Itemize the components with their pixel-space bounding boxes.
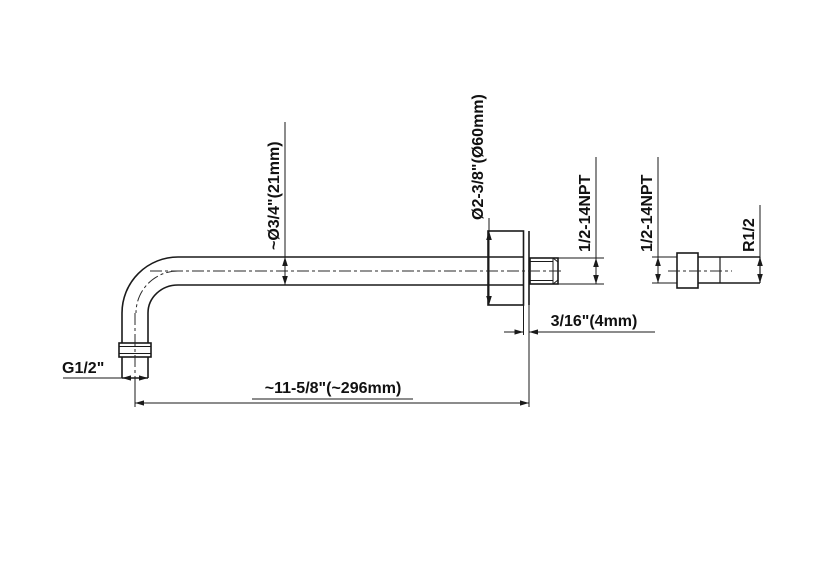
technical-drawing-canvas: ~Ø3/4"(21mm) Ø2-3/8"(Ø60mm) 1/2-14NPT 1/… <box>0 0 831 587</box>
dim-label-tube-od: ~Ø3/4"(21mm) <box>265 120 285 250</box>
dim-label-overall-length: ~11-5/8"(~296mm) <box>233 380 433 398</box>
wall-flange <box>488 231 529 305</box>
dim-label-thread-fitting: 1/2-14NPT <box>638 154 658 252</box>
main-arm-outline <box>119 257 524 378</box>
shower-arm-drawing <box>0 0 831 587</box>
dim-label-flange-od: Ø2-3/8"(Ø60mm) <box>469 74 489 220</box>
dim-label-thread-main: 1/2-14NPT <box>576 154 596 252</box>
dim-label-flange-thickness: 3/16"(4mm) <box>535 313 653 331</box>
dim-label-thread-inlet: G1/2" <box>62 359 104 379</box>
dim-label-thread-radius: R1/2 <box>740 202 760 252</box>
